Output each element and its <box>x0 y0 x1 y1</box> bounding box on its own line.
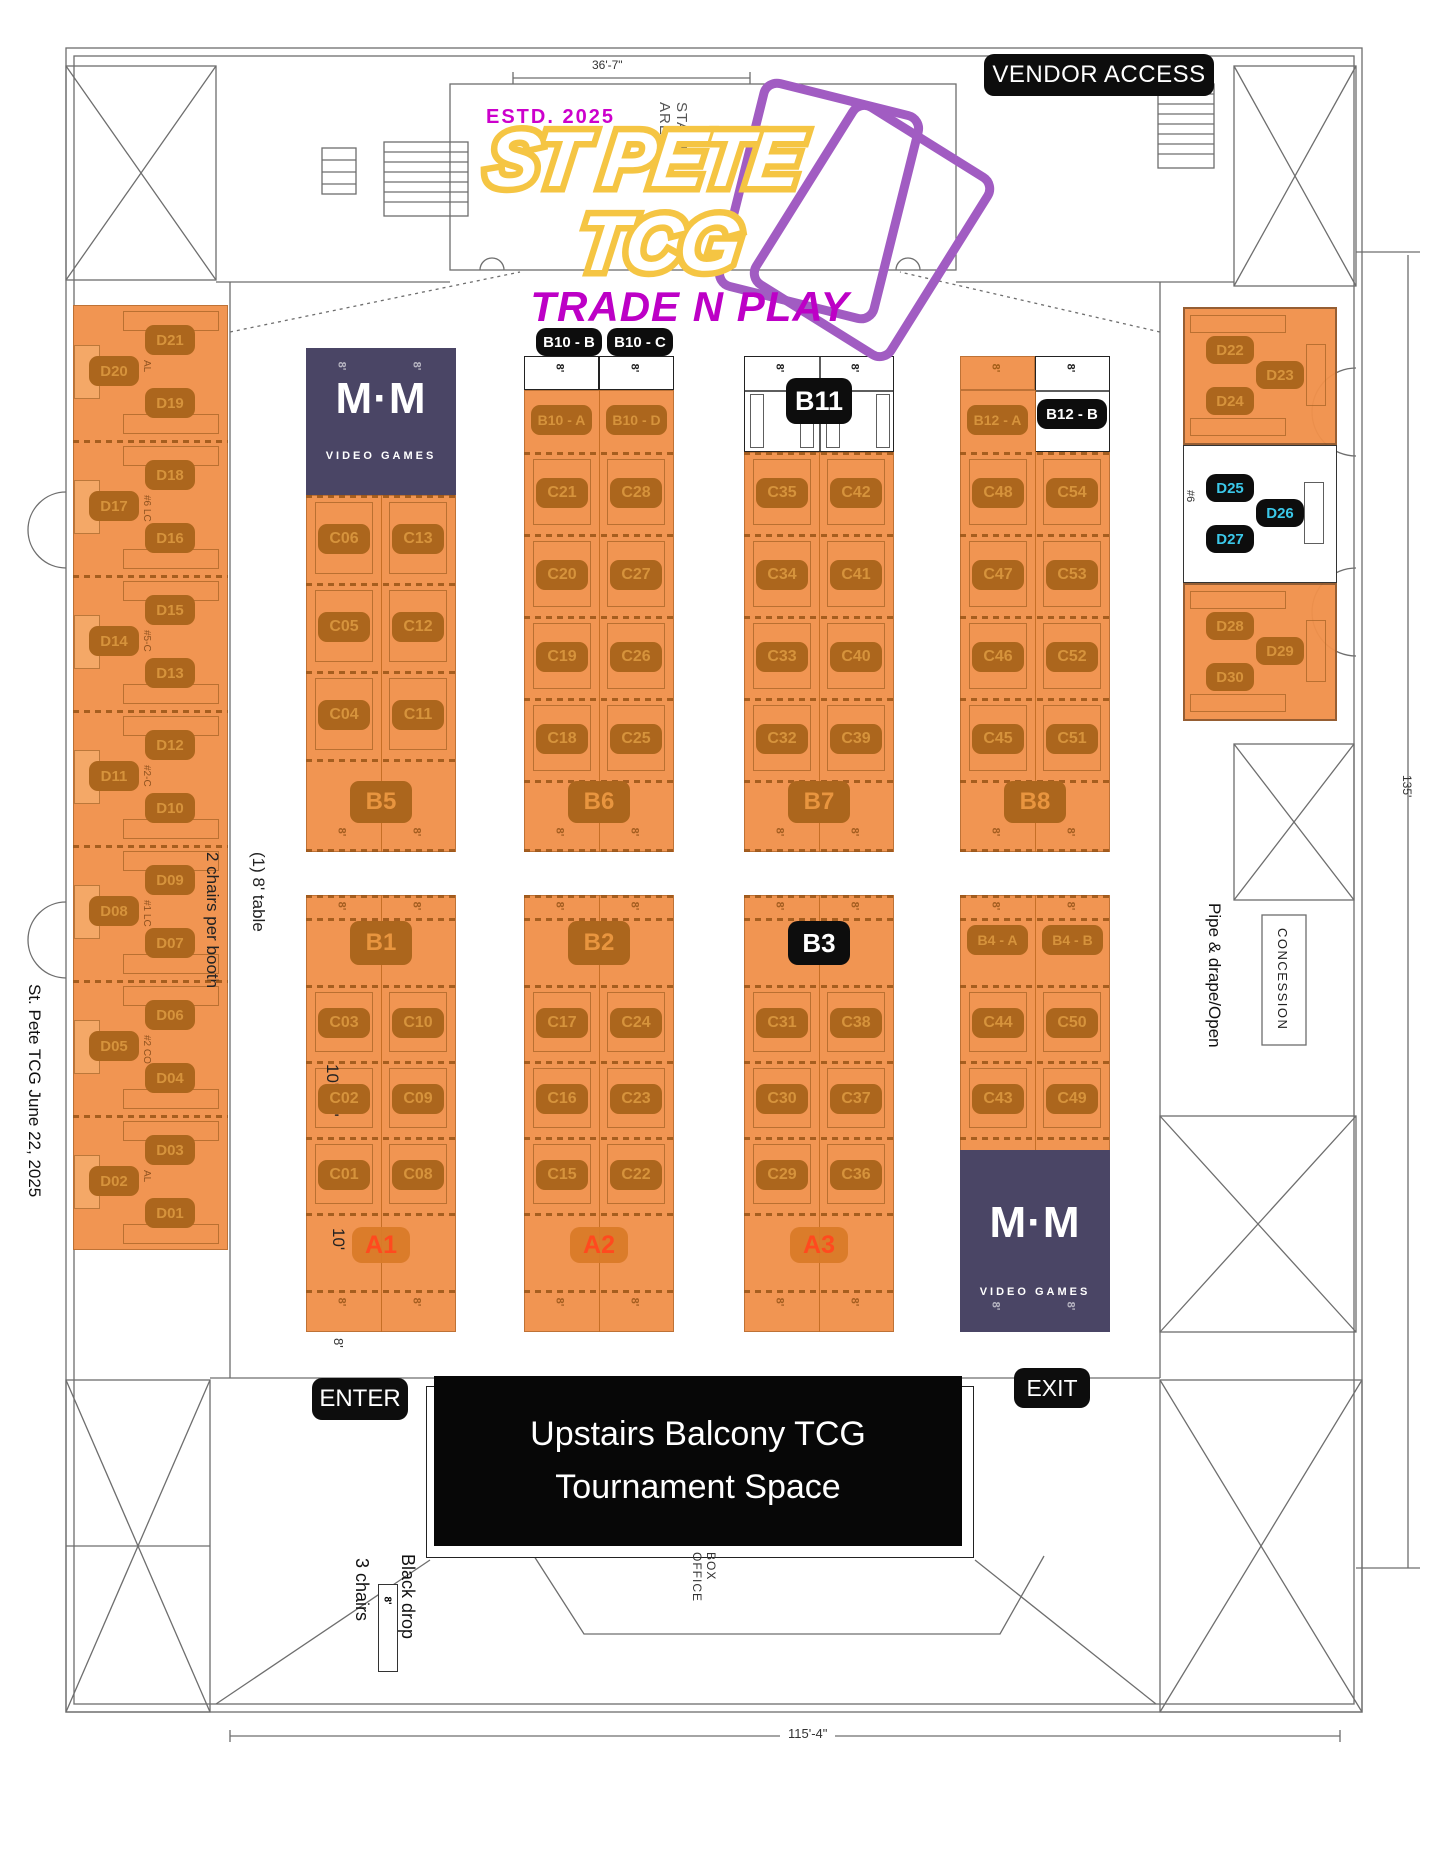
eight-foot-mark: 8' <box>773 902 785 911</box>
ten-foot-label: 10' <box>328 1228 348 1250</box>
table-note-line2: 2 chairs per booth <box>200 852 223 988</box>
logo-subtitle: TRADE N PLAY <box>500 283 880 331</box>
eight-foot-mark: 8' <box>989 902 1001 911</box>
table-outline <box>1190 418 1286 436</box>
booth-label: D29 <box>1256 637 1304 665</box>
drape-line <box>306 1137 456 1140</box>
booth-note: #2 CO <box>141 1035 152 1064</box>
booth-label: D14 <box>89 626 139 656</box>
floor-plan-page: STAGE AREA ESTD. 2025 ST PETEST PETE TCG… <box>0 0 1445 1871</box>
booth-label: D15 <box>145 595 195 625</box>
booth-label: C21 <box>536 478 588 508</box>
drape-line <box>73 440 228 443</box>
mm-name: VIDEO GAMES <box>306 450 456 462</box>
booth-label: D26 <box>1256 499 1304 527</box>
booth-badge: B5 <box>350 781 412 823</box>
booth-badge: A3 <box>790 1227 848 1263</box>
eight-foot-mark: 8' <box>773 364 785 373</box>
booth-badge: B8 <box>1004 781 1066 823</box>
booth-strip <box>960 356 1035 390</box>
booth-label: D03 <box>145 1135 195 1165</box>
booth-label: B10 - A <box>531 405 592 435</box>
drape-line <box>306 985 456 988</box>
booth-badge: B11 <box>786 378 852 424</box>
booth-label: C46 <box>972 642 1024 672</box>
drape-line <box>306 1290 456 1293</box>
booth-label: C41 <box>830 560 882 590</box>
drape-line <box>960 849 1110 852</box>
booth-note: #2-C <box>141 765 152 787</box>
booth-label: C30 <box>756 1084 808 1114</box>
booth-label: C26 <box>610 642 662 672</box>
tournament-space-banner: Upstairs Balcony TCG Tournament Space <box>434 1376 962 1546</box>
eight-foot-mark: 8' <box>628 364 640 373</box>
drape-line <box>73 710 228 713</box>
booth-label: C27 <box>610 560 662 590</box>
booth-label: D23 <box>1256 361 1304 389</box>
eight-foot-mark: 8' <box>1064 1302 1076 1311</box>
banner-line2: Tournament Space <box>555 1461 840 1514</box>
booth-label: C39 <box>830 724 882 754</box>
booth-label: D09 <box>145 865 195 895</box>
booth-label: C04 <box>318 700 370 730</box>
drape-line <box>960 1137 1110 1140</box>
booth-label: C09 <box>392 1084 444 1114</box>
table-outline <box>1190 694 1286 712</box>
booth-label: C37 <box>830 1084 882 1114</box>
booth-label: C33 <box>756 642 808 672</box>
booth-label: C35 <box>756 478 808 508</box>
booth-label: C38 <box>830 1008 882 1038</box>
booth-label: D28 <box>1206 612 1254 640</box>
booth-label: B4 - A <box>967 925 1028 955</box>
eight-foot-mark: 8' <box>989 828 1001 837</box>
booth-label: C47 <box>972 560 1024 590</box>
drape-line <box>524 1137 674 1140</box>
drape-line <box>744 1061 894 1064</box>
enter-badge: ENTER <box>312 1378 408 1420</box>
table-outline <box>1304 482 1324 544</box>
booth-note: #6 <box>1184 490 1196 502</box>
eight-foot-mark: 8' <box>1064 828 1076 837</box>
booth-label: C28 <box>610 478 662 508</box>
booth-divider <box>1035 390 1110 392</box>
drape-line <box>524 985 674 988</box>
eight-foot-mark: 8' <box>553 1298 565 1307</box>
drape-line <box>73 845 228 848</box>
booth-note: #6 LC <box>141 495 152 522</box>
event-date-label: St. Pete TCG June 22, 2025 <box>24 984 44 1197</box>
booth-label: D22 <box>1206 336 1254 364</box>
concession-label: CONCESSION <box>1275 928 1290 1030</box>
booth-note: AL <box>141 360 152 372</box>
booth-label: C20 <box>536 560 588 590</box>
eight-foot-mark: 8' <box>410 1298 422 1307</box>
table-outline <box>1190 315 1286 333</box>
booth-label: C53 <box>1046 560 1098 590</box>
eight-foot-mark: 8' <box>848 902 860 911</box>
booth-label: C18 <box>536 724 588 754</box>
drape-line <box>73 575 228 578</box>
drape-line <box>73 980 228 983</box>
booth-badge: B12 - B <box>1037 399 1107 429</box>
drape-line <box>744 985 894 988</box>
booth-label: C10 <box>392 1008 444 1038</box>
booth-label: B4 - B <box>1042 925 1103 955</box>
booth-label: C12 <box>392 612 444 642</box>
length-cell <box>524 356 599 390</box>
booth-label: D08 <box>89 896 139 926</box>
booth-label: B10 - D <box>606 405 667 435</box>
booth-label: C45 <box>972 724 1024 754</box>
booth-label: D13 <box>145 658 195 688</box>
booth-badge: B3 <box>788 921 850 965</box>
mm-monogram: M·M <box>306 374 456 424</box>
three-chairs-label: 3 chairs <box>351 1558 372 1621</box>
mm-monogram: M·M <box>960 1198 1110 1248</box>
logo-line2-fill: TCG <box>575 199 744 287</box>
eight-foot-mark: 8' <box>553 828 565 837</box>
eight-foot-mark: 8' <box>381 1597 392 1605</box>
eight-foot-mark: 8' <box>848 364 860 373</box>
booth-label: D20 <box>89 356 139 386</box>
drape-line <box>524 1213 674 1216</box>
logo-line1: ST PETEST PETE <box>483 120 804 198</box>
drape-line <box>524 1061 674 1064</box>
booth-label: C15 <box>536 1160 588 1190</box>
booth-label: C51 <box>1046 724 1098 754</box>
estd-label: ESTD. 2025 <box>486 106 615 129</box>
booth-label: C24 <box>610 1008 662 1038</box>
eight-foot-mark: 8' <box>410 828 422 837</box>
booth-label: D24 <box>1206 387 1254 415</box>
eight-foot-mark: 8' <box>335 362 347 371</box>
booth-label: C05 <box>318 612 370 642</box>
booth-badge: B7 <box>788 781 850 823</box>
booth-label: C40 <box>830 642 882 672</box>
eight-foot-mark: 8' <box>553 902 565 911</box>
booth-label: D10 <box>145 793 195 823</box>
table-outline <box>1190 591 1286 609</box>
eight-foot-mark: 8' <box>410 902 422 911</box>
table-outline <box>876 394 890 448</box>
eight-foot-mark: 8' <box>1064 902 1076 911</box>
drape-line <box>306 1061 456 1064</box>
black-drop-label: Black drop <box>397 1554 418 1639</box>
eight-foot-label: 8' <box>331 1338 346 1348</box>
eight-foot-mark: 8' <box>1064 364 1076 373</box>
booth-badge: B6 <box>568 781 630 823</box>
booth-badge: B1 <box>350 921 412 965</box>
booth-label: C01 <box>318 1160 370 1190</box>
booth-label: C44 <box>972 1008 1024 1038</box>
eight-foot-mark: 8' <box>628 1298 640 1307</box>
length-cell <box>599 356 674 390</box>
booth-badge: B10 - C <box>607 328 673 356</box>
black-drop-table: 8' <box>378 1584 398 1672</box>
booth-label: C50 <box>1046 1008 1098 1038</box>
eight-foot-mark: 8' <box>335 828 347 837</box>
booth-label: C32 <box>756 724 808 754</box>
pipe-drape-label: Pipe & drape/Open <box>1204 903 1224 1048</box>
exit-badge: EXIT <box>1014 1368 1090 1408</box>
drape-line <box>960 1061 1110 1064</box>
table-outline <box>750 394 764 448</box>
eight-foot-mark: 8' <box>335 902 347 911</box>
booth-label: C29 <box>756 1160 808 1190</box>
booth-label: D18 <box>145 460 195 490</box>
booth-badge: A1 <box>352 1227 410 1263</box>
booth-label: D05 <box>89 1031 139 1061</box>
vendor-access-badge: VENDOR ACCESS <box>984 54 1214 96</box>
booth-label: C49 <box>1046 1084 1098 1114</box>
booth-label: B12 - A <box>967 405 1028 435</box>
table-note-line1: (1) 8' table <box>246 852 269 988</box>
drape-line <box>306 1213 456 1216</box>
drape-line <box>744 1137 894 1140</box>
drape-line <box>744 849 894 852</box>
logo-line2: TCGTCG <box>575 204 743 282</box>
drape-line <box>524 1290 674 1293</box>
booth-label: C43 <box>972 1084 1024 1114</box>
dimension-right: 135' <box>1400 775 1414 797</box>
booth-label: D21 <box>145 325 195 355</box>
booth-label: C13 <box>392 524 444 554</box>
booth-label: D06 <box>145 1000 195 1030</box>
table-outline <box>1306 344 1326 406</box>
drape-line <box>744 1213 894 1216</box>
booth-label: C02 <box>318 1084 370 1114</box>
booth-label: D27 <box>1206 525 1254 553</box>
eight-foot-mark: 8' <box>773 1298 785 1307</box>
table-outline <box>1306 620 1326 682</box>
booth-label: C08 <box>392 1160 444 1190</box>
booth-label: C11 <box>392 700 444 730</box>
booth-label: C06 <box>318 524 370 554</box>
booth-label: C31 <box>756 1008 808 1038</box>
drape-line <box>960 985 1110 988</box>
mm-name: VIDEO GAMES <box>960 1286 1110 1298</box>
drape-line <box>524 849 674 852</box>
booth-label: C23 <box>610 1084 662 1114</box>
booth-label: C03 <box>318 1008 370 1038</box>
banner-line1: Upstairs Balcony TCG <box>530 1408 866 1461</box>
eight-foot-mark: 8' <box>628 828 640 837</box>
booth-label: C16 <box>536 1084 588 1114</box>
booth-badge: B2 <box>568 921 630 965</box>
booth-label: D30 <box>1206 663 1254 691</box>
booth-label: D16 <box>145 523 195 553</box>
booth-label: C25 <box>610 724 662 754</box>
booth-label: C52 <box>1046 642 1098 672</box>
booth-divider <box>1035 895 1036 1150</box>
booth-badge: A2 <box>570 1227 628 1263</box>
booth-label: D11 <box>89 761 139 791</box>
booth-label: D17 <box>89 491 139 521</box>
eight-foot-mark: 8' <box>989 1302 1001 1311</box>
booth-label: D12 <box>145 730 195 760</box>
booth-label: C22 <box>610 1160 662 1190</box>
eight-foot-mark: 8' <box>989 364 1001 373</box>
booth-label: D25 <box>1206 474 1254 502</box>
dimension-top: 36'-7" <box>592 58 623 72</box>
booth-note: #5-C <box>141 630 152 652</box>
booth-label: D02 <box>89 1166 139 1196</box>
box-office-label: BOX OFFICE <box>690 1552 718 1588</box>
dimension-bottom: 115'-4" <box>780 1726 835 1741</box>
eight-foot-mark: 8' <box>848 828 860 837</box>
booth-label: D19 <box>145 388 195 418</box>
eight-foot-mark: 8' <box>628 902 640 911</box>
eight-foot-mark: 8' <box>553 364 565 373</box>
booth-label: C19 <box>536 642 588 672</box>
drape-line <box>306 849 456 852</box>
booth-note: AL <box>141 1170 152 1182</box>
eight-foot-mark: 8' <box>848 1298 860 1307</box>
drape-line <box>744 1290 894 1293</box>
booth-label: C34 <box>756 560 808 590</box>
booth-label: C42 <box>830 478 882 508</box>
booth-label: D01 <box>145 1198 195 1228</box>
eight-foot-mark: 8' <box>335 1298 347 1307</box>
eight-foot-mark: 8' <box>410 362 422 371</box>
drape-line <box>73 1115 228 1118</box>
booth-badge: B10 - B <box>536 328 602 356</box>
booth-label: D07 <box>145 928 195 958</box>
eight-foot-mark: 8' <box>773 828 785 837</box>
booth-label: D04 <box>145 1063 195 1093</box>
booth-label: C48 <box>972 478 1024 508</box>
booth-label: C36 <box>830 1160 882 1190</box>
booth-note: #1 LC <box>141 900 152 927</box>
booth-label: C17 <box>536 1008 588 1038</box>
booth-label: C54 <box>1046 478 1098 508</box>
